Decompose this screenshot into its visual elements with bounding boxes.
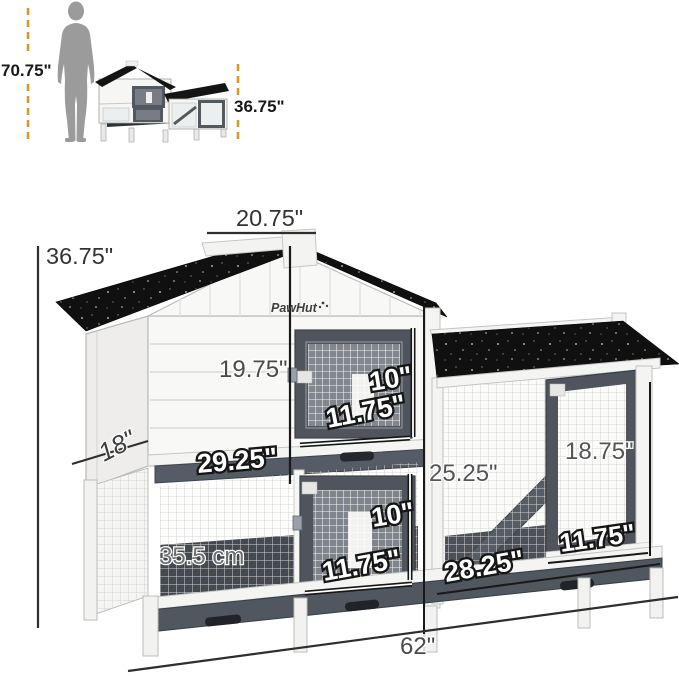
- leg-mid: [294, 598, 307, 652]
- dim-run-door-height: 18.75": [565, 438, 634, 465]
- dim-ridge-width: 20.75": [236, 205, 303, 231]
- warning-sticker: [297, 371, 312, 383]
- warning-sticker: [302, 482, 317, 494]
- person-height-label: 70.75": [1, 61, 52, 80]
- warning-sticker: [550, 384, 565, 396]
- person-body: [58, 23, 95, 141]
- product-thumbnail: [95, 61, 229, 142]
- size-comparison: [28, 2, 238, 144]
- lower-door-latch: [293, 516, 302, 530]
- hutch-diagram-art: PawHut 70.75" 36.75" 20.75" 36.75" 19.75…: [0, 0, 679, 676]
- leg-front-left: [143, 596, 158, 656]
- person-silhouette: [58, 2, 95, 143]
- dim-lower-left-height: 35.5 cm: [159, 543, 244, 570]
- house-side-panel: [86, 316, 148, 489]
- rear-left-post: [84, 480, 97, 620]
- leg-run-right: [650, 568, 663, 618]
- upper-tray-handle: [340, 451, 374, 462]
- product-height-label: 36.75": [234, 97, 285, 116]
- brand-logo: PawHut: [271, 301, 318, 315]
- dim-run-height: 25.25": [429, 460, 498, 487]
- dim-upper-wall-height: 19.75": [219, 356, 288, 383]
- paw-icon: [322, 302, 325, 305]
- dim-total-width: 62": [400, 633, 435, 660]
- product-dimension-image: PawHut 70.75" 36.75" 20.75" 36.75" 19.75…: [0, 0, 679, 676]
- ridge-vent-block: [282, 229, 317, 268]
- dim-total-height: 36.75": [46, 243, 113, 269]
- leg-run-mid: [578, 578, 590, 628]
